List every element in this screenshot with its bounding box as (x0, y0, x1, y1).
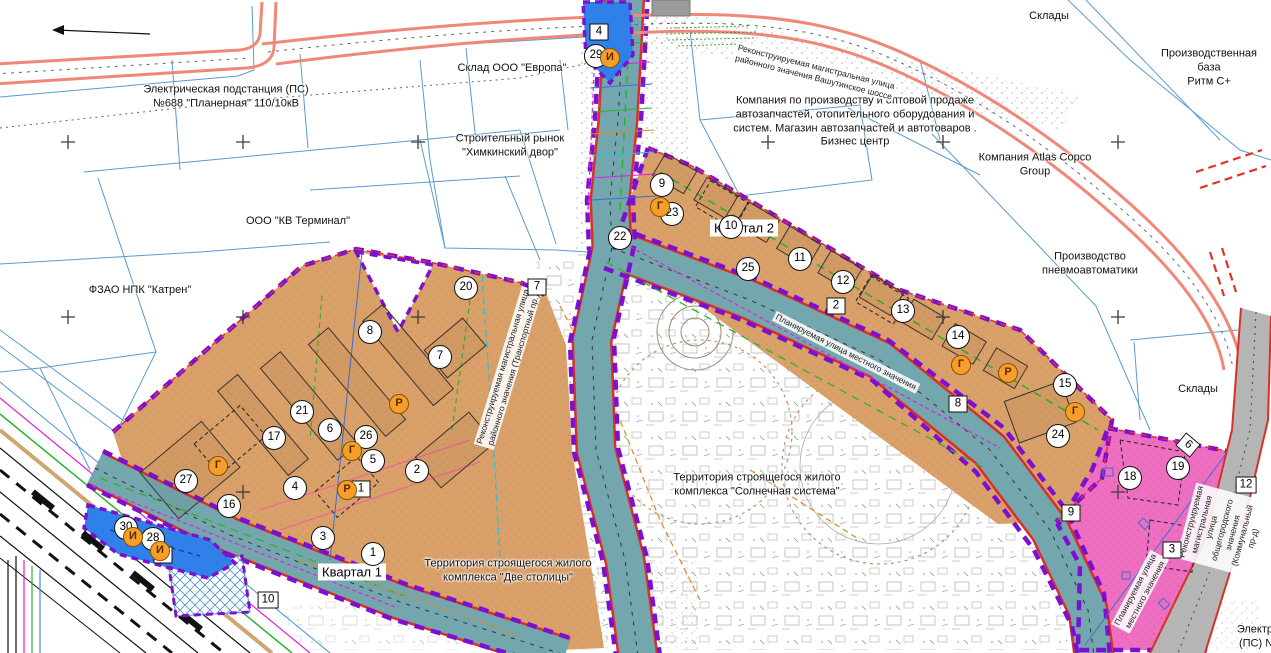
planned-road-dashes (1196, 150, 1266, 296)
north-arrow-icon (52, 25, 64, 35)
map-graphics (0, 0, 1271, 653)
road-block (652, 0, 690, 16)
map-canvas[interactable]: Электрическая подстанция (ПС) №688 "План… (0, 0, 1271, 653)
